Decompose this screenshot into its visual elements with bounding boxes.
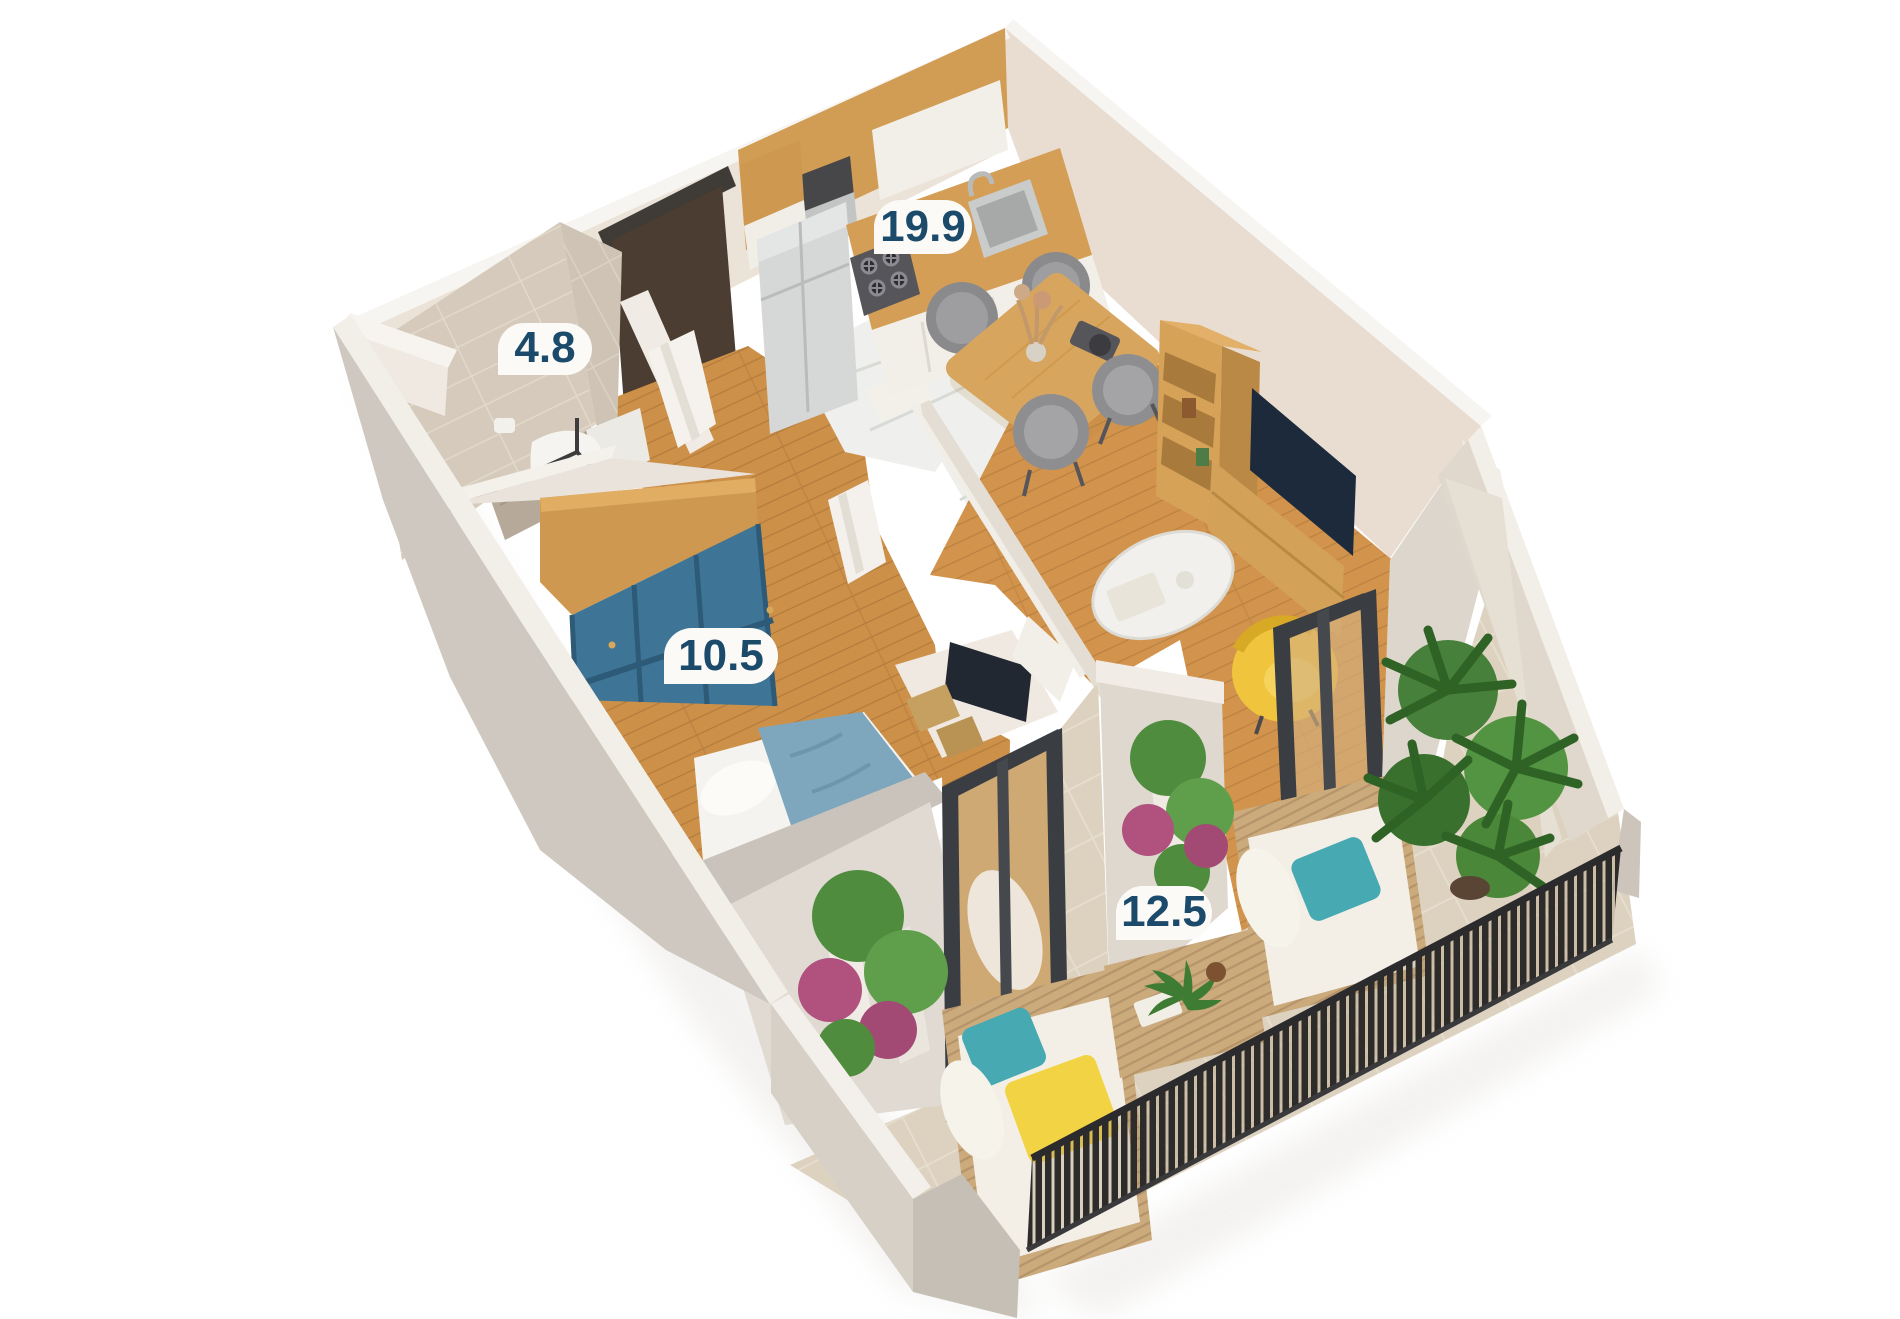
svg-text:4.8: 4.8: [514, 323, 575, 372]
svg-text:10.5: 10.5: [678, 631, 764, 680]
svg-text:12.5: 12.5: [1121, 887, 1207, 936]
svg-text:19.9: 19.9: [880, 202, 966, 251]
